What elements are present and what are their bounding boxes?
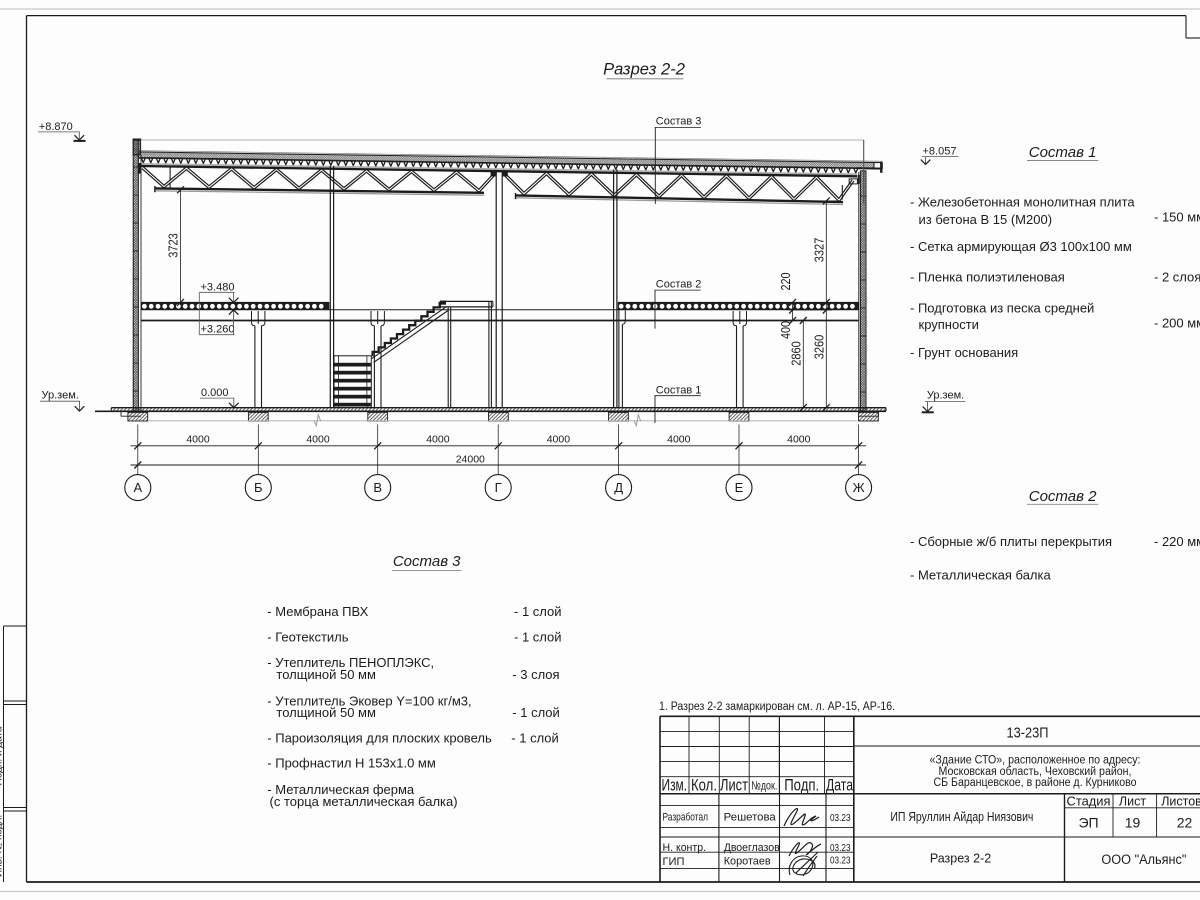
svg-text:19: 19 <box>1125 815 1141 831</box>
svg-text:- Грунт основания: - Грунт основания <box>910 345 1018 360</box>
svg-text:Е: Е <box>735 480 744 495</box>
svg-text:13-23П: 13-23П <box>1007 725 1049 741</box>
svg-text:Двоеглазов: Двоеглазов <box>724 842 780 854</box>
svg-text:- 1 слой: - 1 слой <box>511 731 559 746</box>
svg-text:Разрез 2-2: Разрез 2-2 <box>930 852 991 866</box>
svg-text:4000: 4000 <box>547 433 571 445</box>
svg-text:- 2 слоя: - 2 слоя <box>1154 270 1200 285</box>
svg-text:03.23: 03.23 <box>830 812 851 824</box>
svg-text:2860: 2860 <box>790 341 804 366</box>
svg-text:4000: 4000 <box>186 433 210 445</box>
svg-text:Состав 1: Состав 1 <box>656 384 702 396</box>
svg-text:А: А <box>133 480 142 495</box>
svg-text:- Пароизоляция для плоских кро: - Пароизоляция для плоских кровель <box>267 731 492 746</box>
svg-text:+8.870: +8.870 <box>39 121 73 133</box>
svg-text:- Железобетонная монолитная п: - Железобетонная монолитная плита <box>910 195 1135 210</box>
svg-text:Изм.: Изм. <box>662 777 688 795</box>
svg-text:Разработал: Разработал <box>663 812 709 824</box>
svg-text:+3.480: +3.480 <box>201 281 235 293</box>
svg-text:В: В <box>373 480 382 495</box>
svg-text:4000: 4000 <box>426 433 450 445</box>
svg-text:«Здание СТО», расположенное по: «Здание СТО», расположенное по адресу: <box>930 755 1141 767</box>
svg-text:- 3 слоя: - 3 слоя <box>512 667 559 682</box>
svg-text:220: 220 <box>779 272 793 290</box>
svg-text:ООО "Альянс": ООО "Альянс" <box>1101 852 1186 867</box>
svg-text:Решетова: Решетова <box>724 812 777 824</box>
svg-text:Г: Г <box>495 480 502 495</box>
svg-text:Состав 2: Состав 2 <box>1029 488 1097 505</box>
svg-text:СБ Баранцевское, в районе д. К: СБ Баранцевское, в районе д. Курниково <box>934 777 1137 789</box>
svg-text:- 150 мм: - 150 мм <box>1154 210 1200 225</box>
svg-text:ГИП: ГИП <box>663 856 685 868</box>
svg-text:ЭП: ЭП <box>1078 815 1098 831</box>
svg-text:400: 400 <box>779 321 793 339</box>
svg-text:+3.260: +3.260 <box>201 324 235 336</box>
svg-text:+8.057: +8.057 <box>923 145 957 157</box>
svg-text:Подп. и дата: Подп. и дата <box>0 726 4 785</box>
svg-text:- 1 слой: - 1 слой <box>514 604 562 619</box>
svg-text:- 220 мм: - 220 мм <box>1154 534 1200 549</box>
svg-text:1. Разрез 2-2 замаркирован см.: 1. Разрез 2-2 замаркирован см. л. АР-15,… <box>659 701 895 713</box>
svg-text:ИП Яруллин Айдар Ниязович: ИП Яруллин Айдар Ниязович <box>890 810 1033 824</box>
svg-text:Дата: Дата <box>826 777 854 795</box>
svg-text:3327: 3327 <box>812 238 826 263</box>
svg-text:- Пленка полиэтиленовая: - Пленка полиэтиленовая <box>910 270 1065 285</box>
svg-text:Д: Д <box>614 480 623 495</box>
svg-text:Состав 2: Состав 2 <box>656 279 702 291</box>
svg-text:Н. контр.: Н. контр. <box>663 842 707 854</box>
svg-text:03.23: 03.23 <box>830 842 851 854</box>
svg-text:толщиной 50 мм: толщиной 50 мм <box>276 667 376 682</box>
svg-text:из бетона В 15 (М200): из бетона В 15 (М200) <box>919 212 1053 227</box>
svg-text:- Металлическая балка: - Металлическая балка <box>910 568 1051 583</box>
svg-text:- Профнастил Н 153х1.0 мм: - Профнастил Н 153х1.0 мм <box>267 755 436 770</box>
svg-text:толщиной 50 мм: толщиной 50 мм <box>276 705 376 720</box>
svg-text:- Сборные ж/б плиты перекрытия: - Сборные ж/б плиты перекрытия <box>910 534 1112 549</box>
svg-text:Коротаев: Коротаев <box>724 856 771 868</box>
svg-text:(с торца металлическая балка): (с торца металлическая балка) <box>270 794 458 809</box>
svg-text:Листов: Листов <box>1161 794 1200 808</box>
svg-text:Ур.зем.: Ур.зем. <box>42 389 79 401</box>
svg-text:- Сетка армирующая Ø3 100х100: - Сетка армирующая Ø3 100х100 мм <box>910 239 1132 254</box>
svg-text:Ур.зем.: Ур.зем. <box>927 389 964 401</box>
svg-text:Инв. № подл.: Инв. № подл. <box>0 815 4 877</box>
svg-text:- Подготовка из песка средней: - Подготовка из песка средней <box>910 300 1094 315</box>
svg-text:- 1 слой: - 1 слой <box>514 629 562 644</box>
svg-text:Ж: Ж <box>853 480 865 495</box>
svg-text:Подп.: Подп. <box>784 777 819 795</box>
svg-text:24000: 24000 <box>456 453 485 465</box>
svg-text:- Мембрана ПВХ: - Мембрана ПВХ <box>267 604 368 619</box>
svg-text:Стадия: Стадия <box>1067 794 1111 808</box>
svg-text:Состав 3: Состав 3 <box>656 116 702 128</box>
svg-text:4000: 4000 <box>787 433 811 445</box>
svg-text:Состав 1: Состав 1 <box>1029 144 1097 161</box>
svg-text:22: 22 <box>1177 815 1193 831</box>
svg-text:- Геотекстиль: - Геотекстиль <box>267 629 348 644</box>
svg-text:крупности: крупности <box>919 317 979 332</box>
svg-text:№док.: №док. <box>751 779 777 793</box>
svg-text:Разрез 2-2: Разрез 2-2 <box>603 61 685 79</box>
svg-text:- 1 слой: - 1 слой <box>512 705 560 720</box>
svg-text:03.23: 03.23 <box>830 855 851 867</box>
svg-text:4000: 4000 <box>306 433 330 445</box>
svg-text:Состав 3: Состав 3 <box>393 553 461 570</box>
svg-text:Лист: Лист <box>720 777 748 795</box>
svg-text:3260: 3260 <box>812 335 826 360</box>
svg-text:Лист: Лист <box>1119 794 1146 808</box>
svg-text:4000: 4000 <box>667 433 691 445</box>
svg-text:Кол.: Кол. <box>691 777 717 795</box>
svg-text:0.000: 0.000 <box>201 387 229 399</box>
svg-text:- 200 мм: - 200 мм <box>1154 315 1200 330</box>
svg-text:Б: Б <box>254 480 263 495</box>
svg-text:3723: 3723 <box>166 233 180 258</box>
